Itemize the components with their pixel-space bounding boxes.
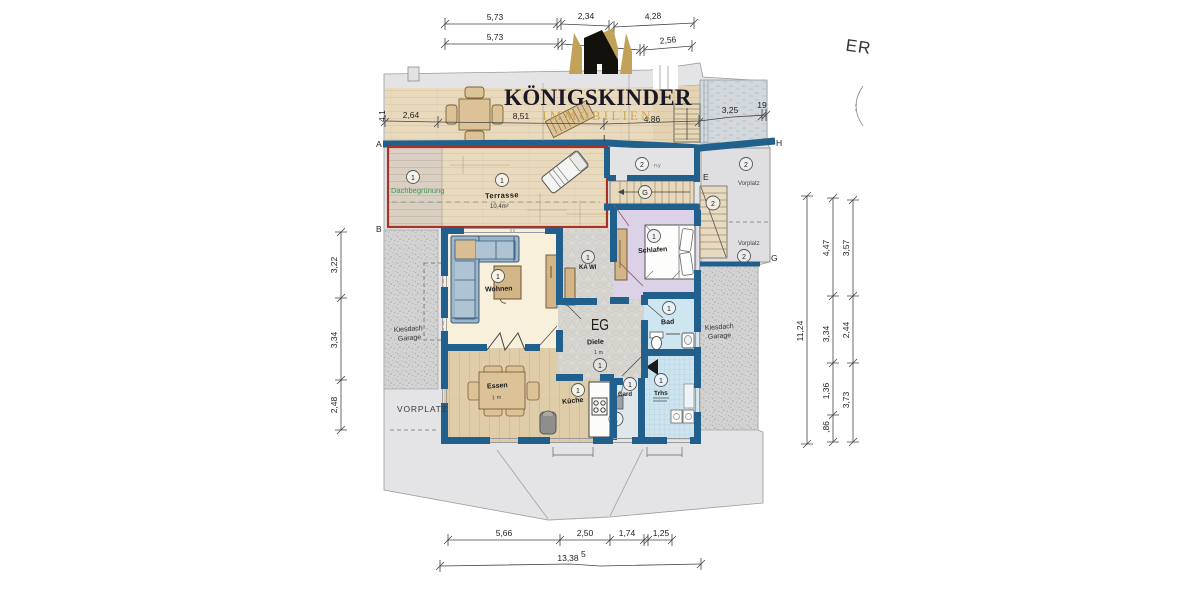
svg-text:Vorplatz: Vorplatz xyxy=(738,241,760,247)
svg-text:13,38: 13,38 xyxy=(557,553,579,563)
svg-text:3,57: 3,57 xyxy=(841,239,851,256)
svg-text:11,24: 11,24 xyxy=(795,320,805,341)
svg-text:1 m: 1 m xyxy=(492,395,502,402)
svg-text:Diele: Diele xyxy=(587,339,604,347)
svg-text:2: 2 xyxy=(640,162,644,169)
svg-text:E: E xyxy=(703,172,709,182)
svg-text:3,34: 3,34 xyxy=(329,331,339,348)
svg-text:2,44: 2,44 xyxy=(841,321,851,338)
svg-text:I: I xyxy=(603,133,605,143)
svg-text:5: 5 xyxy=(581,549,586,559)
svg-text:IMMOBILIEN: IMMOBILIEN xyxy=(542,108,653,123)
svg-text:1,36: 1,36 xyxy=(821,382,831,399)
svg-text:2,50: 2,50 xyxy=(577,528,594,538)
svg-text:2: 2 xyxy=(742,254,746,261)
svg-text:4,47: 4,47 xyxy=(821,239,831,256)
svg-text:1: 1 xyxy=(628,382,632,389)
svg-text:2: 2 xyxy=(744,162,748,169)
svg-text:Bad: Bad xyxy=(661,319,675,327)
svg-text:3,22: 3,22 xyxy=(329,256,339,273)
svg-text:Terrasse: Terrasse xyxy=(485,190,519,200)
svg-text:3,73: 3,73 xyxy=(841,391,851,408)
svg-text:n.y: n.y xyxy=(654,163,661,169)
svg-text:1: 1 xyxy=(576,388,580,395)
svg-text:2,56: 2,56 xyxy=(659,34,677,45)
svg-text:G: G xyxy=(642,188,648,197)
svg-text:B: B xyxy=(376,224,382,234)
svg-text:19: 19 xyxy=(757,100,767,110)
svg-text:KA WI: KA WI xyxy=(579,265,597,271)
svg-text:5,73: 5,73 xyxy=(487,32,504,42)
svg-text:3,34: 3,34 xyxy=(821,325,831,342)
svg-text:4,1: 4,1 xyxy=(377,110,387,122)
svg-text:Vorplatz: Vorplatz xyxy=(738,181,760,187)
svg-text:1: 1 xyxy=(586,255,590,262)
svg-text:1: 1 xyxy=(667,306,671,313)
svg-text:1: 1 xyxy=(496,274,500,281)
svg-text:EG: EG xyxy=(591,317,609,334)
svg-text:H: H xyxy=(776,138,782,148)
svg-text:2,48: 2,48 xyxy=(329,396,339,413)
svg-text:4,28: 4,28 xyxy=(644,10,661,21)
svg-text:3,25: 3,25 xyxy=(722,105,739,115)
svg-text:,86: ,86 xyxy=(821,421,831,433)
svg-text:10,4m²: 10,4m² xyxy=(490,204,509,210)
svg-text:Dachbegrünung: Dachbegrünung xyxy=(391,186,444,195)
svg-text:Essen: Essen xyxy=(487,382,508,390)
svg-text:5,66: 5,66 xyxy=(496,528,513,538)
svg-text:1,74: 1,74 xyxy=(619,528,636,538)
svg-text:Wohnen: Wohnen xyxy=(485,285,513,293)
svg-text:8,51: 8,51 xyxy=(513,111,530,121)
svg-text:5,73: 5,73 xyxy=(487,12,504,22)
svg-text:Gard: Gard xyxy=(618,392,632,398)
svg-text:Trhs: Trhs xyxy=(654,390,668,398)
svg-text:1: 1 xyxy=(411,175,415,182)
svg-text:1,25: 1,25 xyxy=(653,528,670,538)
svg-text:2: 2 xyxy=(711,201,715,208)
svg-text:ER: ER xyxy=(845,36,873,58)
svg-text:2,34: 2,34 xyxy=(578,11,595,21)
svg-text:1 m: 1 m xyxy=(594,350,604,356)
svg-text:VORPLATZ: VORPLATZ xyxy=(397,404,448,414)
svg-text:A: A xyxy=(376,139,382,149)
svg-text:1: 1 xyxy=(500,178,504,185)
svg-text:G: G xyxy=(771,253,778,263)
svg-text:1: 1 xyxy=(652,234,656,241)
svg-text:1: 1 xyxy=(598,363,602,370)
svg-text:2,64: 2,64 xyxy=(403,110,420,120)
svg-text:KÖNIGSKINDER: KÖNIGSKINDER xyxy=(504,85,692,110)
svg-text:1: 1 xyxy=(659,378,663,385)
